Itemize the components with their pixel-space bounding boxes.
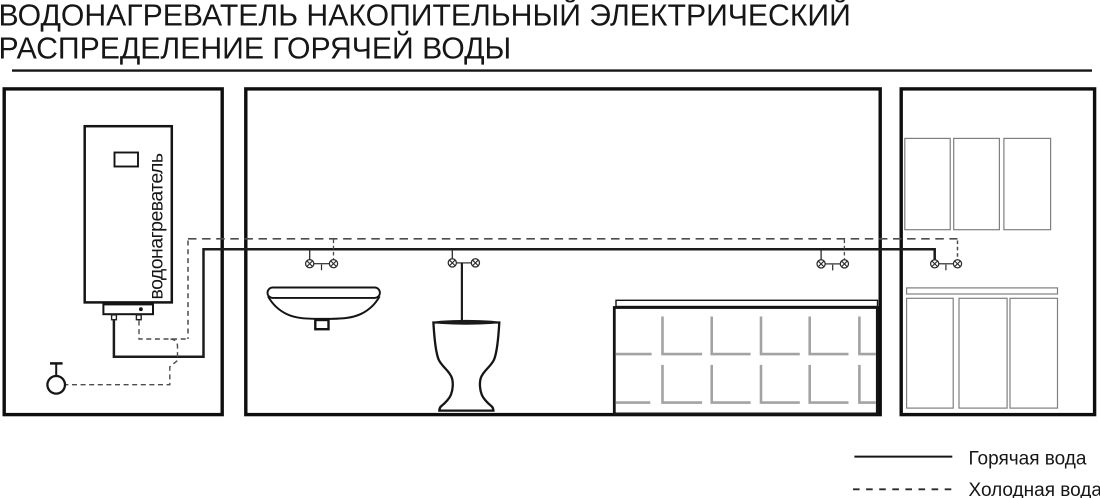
svg-text:водонагреватель: водонагреватель bbox=[146, 153, 168, 300]
svg-text:Холодная вода: Холодная вода bbox=[969, 480, 1100, 498]
svg-text:Горячая вода: Горячая вода bbox=[969, 448, 1087, 469]
svg-text:ВОДОНАГРЕВАТЕЛЬ НАКОПИТЕЛЬНЫЙ: ВОДОНАГРЕВАТЕЛЬ НАКОПИТЕЛЬНЫЙ ЭЛЕКТРИЧЕС… bbox=[0, 0, 851, 33]
svg-text:РАСПРЕДЕЛЕНИЕ ГОРЯЧЕЙ ВОДЫ: РАСПРЕДЕЛЕНИЕ ГОРЯЧЕЙ ВОДЫ bbox=[0, 32, 511, 66]
